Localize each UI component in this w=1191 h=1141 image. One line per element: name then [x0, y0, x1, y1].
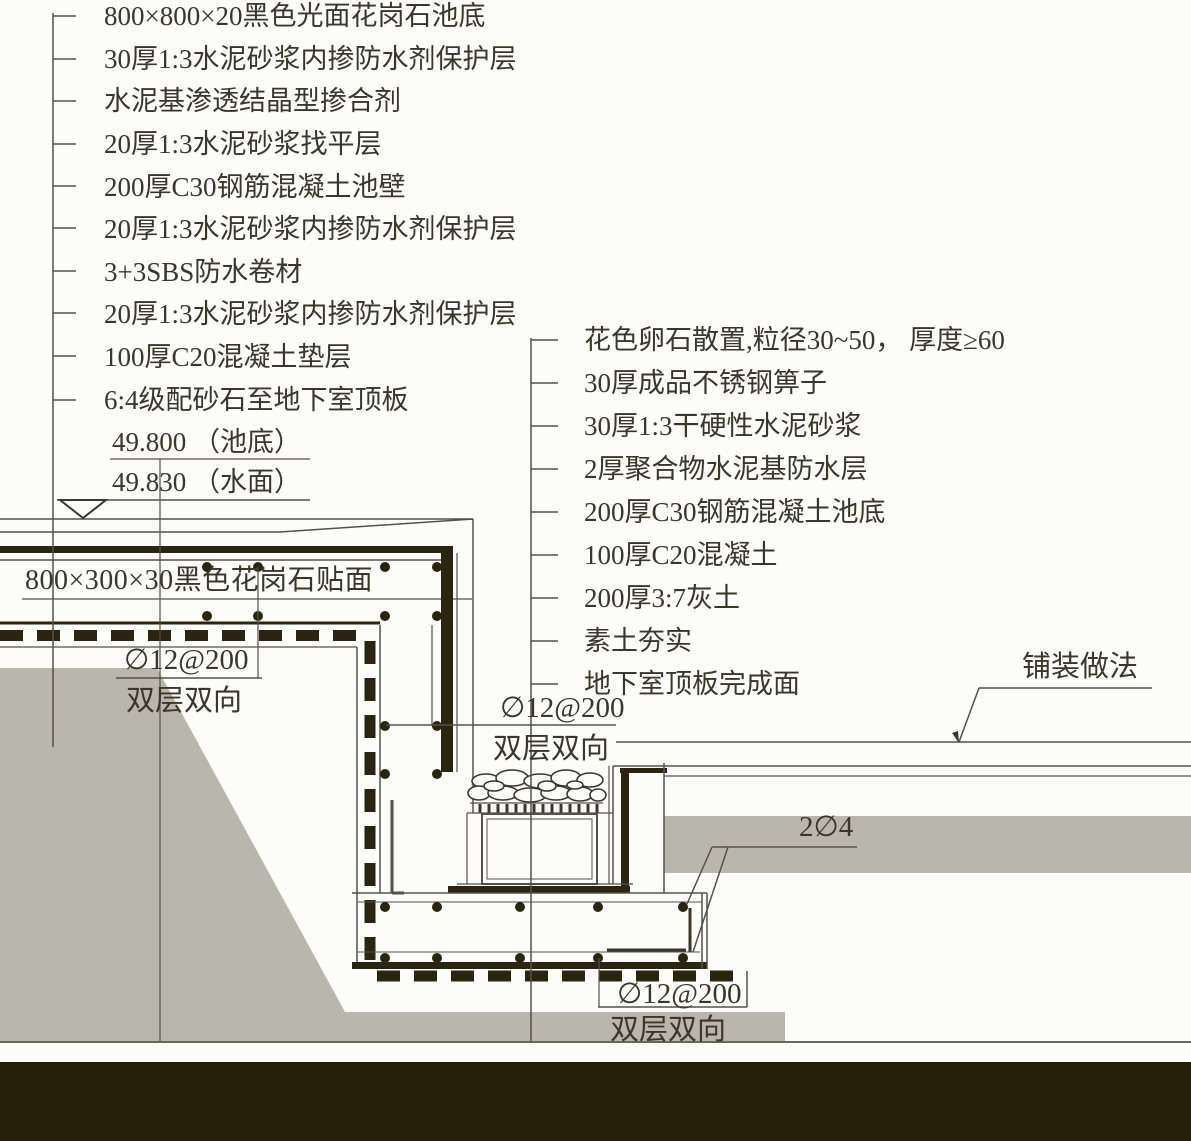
rebar-note-mid: 双层双向: [493, 734, 609, 765]
bottom-dark-band: [0, 1062, 1191, 1141]
callout-mortar-protect-3: 20厚1:3水泥砂浆内掺防水剂保护层: [104, 300, 517, 329]
callout-graded-gravel: 6:4级配砂石至地下室顶板: [104, 386, 409, 415]
callout-c30-wall: 200厚C30钢筋混凝土池壁: [104, 173, 406, 202]
callout-mortar-protect-2: 20厚1:3水泥砂浆内掺防水剂保护层: [104, 215, 517, 244]
callout-c20-concrete: 100厚C20混凝土: [584, 541, 778, 570]
water-level-symbol: [60, 500, 106, 518]
callout-lime-soil: 200厚3:7灰土: [584, 584, 740, 613]
rebar-note-bottom: 双层双向: [610, 1015, 726, 1046]
callout-sbs-membrane: 3+3SBS防水卷材: [104, 258, 302, 287]
rebar-spec-bottom: ∅12@200: [617, 979, 741, 1010]
rebar-note-left: 双层双向: [126, 686, 242, 717]
membrane-right-top: [620, 768, 667, 773]
lime-soil-band: [664, 816, 1191, 873]
callout-c20-cushion: 100厚C20混凝土垫层: [104, 343, 352, 372]
callout-compacted-soil: 素土夯实: [584, 627, 692, 656]
pebble-fill: [468, 770, 606, 802]
callout-mortar-protect-1: 30厚1:3水泥砂浆内掺防水剂保护层: [104, 45, 517, 74]
sump-box-outer: [482, 814, 597, 884]
channel-floor-dark: [448, 886, 630, 893]
level-water-surface: 49.830 （水面）: [112, 468, 301, 497]
callout-leveling-layer: 20厚1:3水泥砂浆找平层: [104, 130, 382, 159]
sump-box-inner: [487, 819, 592, 879]
level-pool-bottom: 49.800 （池底）: [112, 428, 301, 457]
granite-facing-label: 800×300×30黑色花岗石贴面: [25, 566, 373, 596]
pool-wall: [357, 519, 473, 962]
callout-polymer-wp: 2厚聚合物水泥基防水层: [584, 455, 868, 484]
membrane-right-wall: [621, 772, 629, 890]
callout-steel-grate: 30厚成品不锈钢箅子: [584, 369, 827, 398]
detail-drawing: 800×800×20黑色光面花岗石池底 30厚1:3水泥砂浆内掺防水剂保护层 水…: [0, 0, 1191, 1141]
callout-pebbles: 花色卵石散置,粒径30~50， 厚度≥60: [584, 326, 1005, 355]
slab-bottom-dark: [352, 962, 707, 969]
edge-bars-label: 2∅4: [799, 812, 853, 843]
callout-dry-mortar: 30厚1:3干硬性水泥砂浆: [584, 412, 862, 441]
callout-c30-channel-slab: 200厚C30钢筋混凝土池底: [584, 498, 886, 527]
paving-note-label: 铺装做法: [1022, 652, 1138, 683]
callout-crystalline-admix: 水泥基渗透结晶型掺合剂: [104, 87, 401, 116]
rebar-spec-left: ∅12@200: [124, 645, 248, 676]
rebar-spec-mid: ∅12@200: [500, 693, 624, 724]
granite-wall-facing: [441, 546, 453, 772]
coping-slope-line: [280, 519, 473, 532]
steel-grate: [480, 804, 597, 813]
drain-channel: [448, 763, 667, 893]
pavement-layers: [613, 742, 1191, 776]
callout-pool-granite: 800×800×20黑色光面花岗石池底: [104, 2, 485, 31]
granite-floor-band: [0, 546, 453, 553]
paving-leader-arrow: [952, 731, 959, 743]
